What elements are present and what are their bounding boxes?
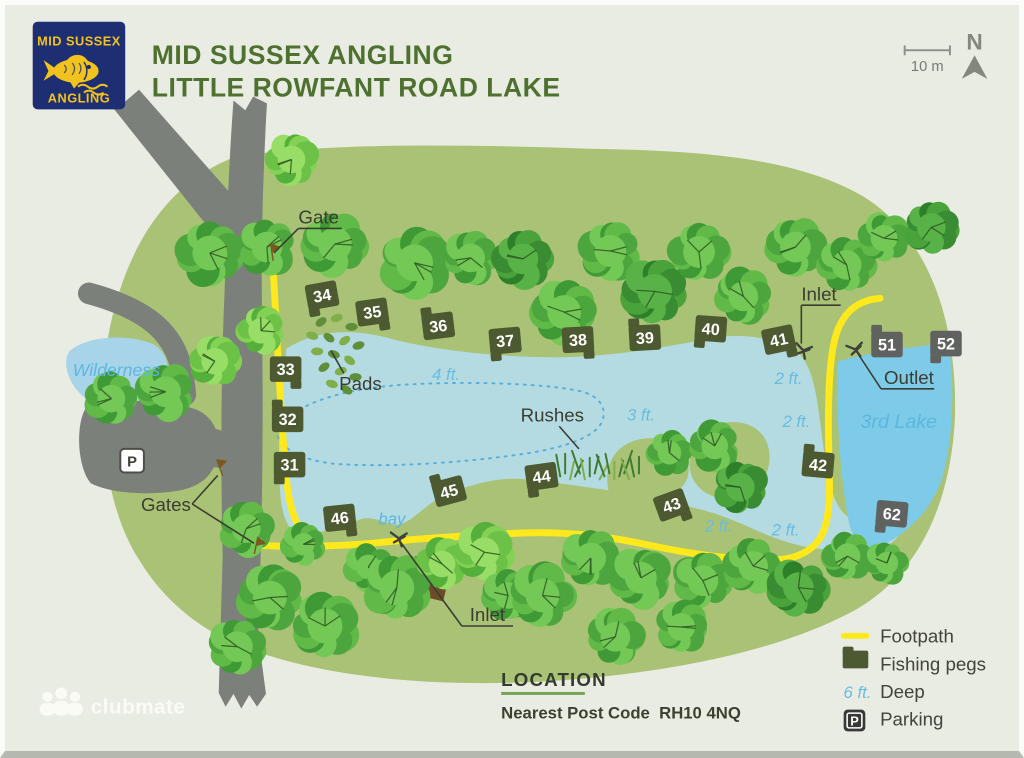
club-logo-line2: ANGLING [48, 90, 110, 105]
map-page: 34353637383940415152333231464544434262Ga… [0, 0, 1024, 758]
label-rushes: Rushes [521, 404, 584, 425]
depth-label: 2 ft. [781, 412, 810, 431]
location-block: LOCATION Nearest Post Code RH10 4NQ [501, 669, 741, 722]
peg-number: 37 [495, 332, 515, 352]
map-title-line2: LITTLE ROWFANT ROAD LAKE [152, 73, 561, 103]
label-inlet: Inlet [801, 283, 837, 304]
peg-number: 46 [330, 509, 350, 529]
peg-number: 36 [428, 317, 448, 337]
depth-label: 4 ft. [432, 365, 460, 384]
peg-number: 33 [277, 361, 295, 379]
peg-number: 34 [312, 286, 333, 307]
north-arrow-icon: N [962, 29, 988, 79]
depth-label: 2 ft. [774, 369, 803, 388]
location-heading: LOCATION [501, 669, 607, 690]
lily-pad [345, 323, 357, 331]
legend: Footpath Fishing pegs 6 ft. Deep P Parki… [843, 626, 986, 732]
peg-number: 35 [362, 303, 382, 323]
depth-text-icon: 6 ft. [843, 683, 871, 702]
legend-parking-label: Parking [880, 708, 943, 729]
tree-icon [293, 592, 359, 658]
water-label-bay: bay [378, 510, 407, 529]
fishing-peg-icon [843, 647, 869, 669]
peg-number: 40 [701, 320, 720, 339]
peg-number: 38 [569, 331, 588, 350]
peg-number: 32 [279, 411, 297, 429]
lily-pad [311, 347, 323, 355]
label-pads: Pads [339, 373, 382, 394]
map-artwork: 34353637383940415152333231464544434262Ga… [66, 90, 962, 709]
label-outlet: Outlet [884, 367, 935, 388]
lake-map-svg: 34353637383940415152333231464544434262Ga… [5, 5, 1019, 751]
water-label-wilderness: Wilderness [73, 360, 161, 380]
tree-icon [240, 220, 294, 276]
legend-pegs-label: Fishing pegs [880, 653, 986, 674]
parking-icon-letter: P [850, 713, 859, 728]
peg-number: 42 [808, 456, 828, 476]
water-label-3rd-lake: 3rd Lake [860, 411, 937, 433]
club-logo-line1: MID SUSSEX [37, 33, 121, 48]
peg-number: 31 [281, 457, 299, 475]
depth-label: 3 ft. [627, 405, 655, 424]
legend-deep-label: Deep [880, 681, 925, 702]
peg-number: 51 [878, 336, 896, 354]
map-title-line1: MID SUSSEX ANGLING [152, 40, 454, 70]
label-gates: Gates [141, 494, 191, 515]
parking-icon: P [844, 710, 866, 732]
label-inlet: Inlet [470, 604, 506, 625]
peg-number: 62 [882, 505, 902, 525]
club-logo: MID SUSSEX ANGLING [33, 22, 126, 110]
depth-label: 2 ft. [704, 517, 733, 536]
scale-bar: 10 m [905, 45, 950, 75]
tree-icon [905, 202, 960, 254]
peg-number: 41 [768, 330, 789, 351]
parking-map-icon: P [120, 449, 144, 473]
scale-label: 10 m [911, 59, 944, 75]
depth-label: 2 ft. [771, 520, 800, 539]
north-label: N [966, 29, 982, 54]
peg-number: 44 [531, 467, 551, 487]
location-underline [501, 692, 585, 695]
legend-footpath-label: Footpath [880, 626, 954, 647]
clubmate-logo: clubmate [40, 688, 186, 719]
clubmate-people-icon [40, 688, 83, 716]
parking-map-letter: P [127, 455, 137, 471]
label-gate: Gate [298, 206, 339, 227]
peg-number: 39 [635, 329, 654, 348]
location-postcode: Nearest Post Code RH10 4NQ [501, 704, 741, 723]
clubmate-text: clubmate [91, 696, 186, 719]
peg-number: 52 [937, 335, 955, 353]
